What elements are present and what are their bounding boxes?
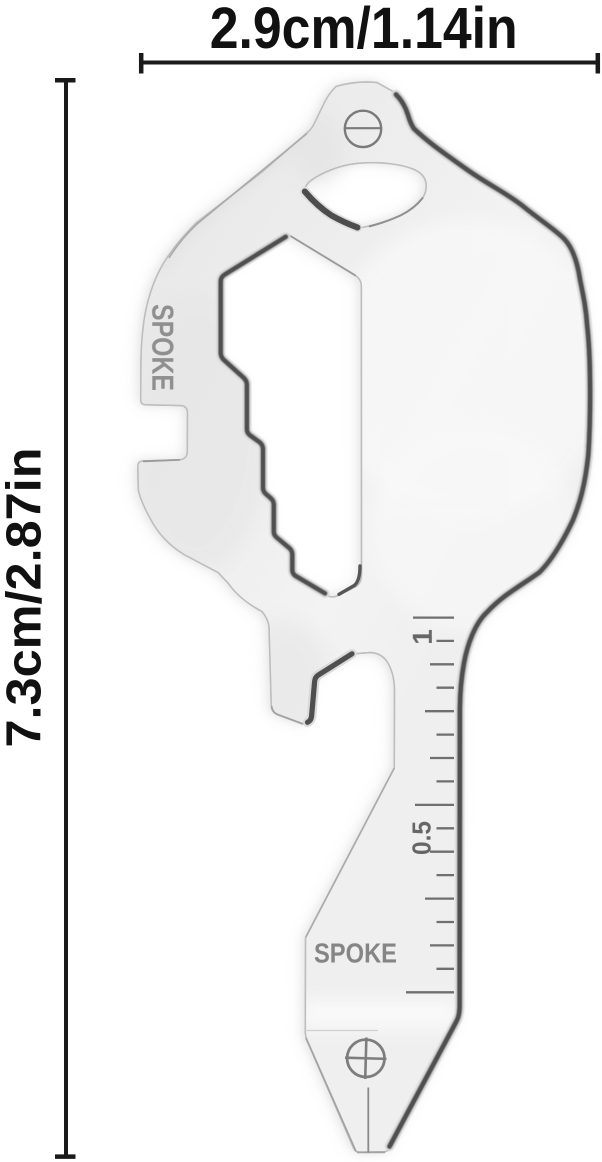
svg-text:2.9cm/1.14in: 2.9cm/1.14in bbox=[210, 0, 518, 61]
svg-text:1: 1 bbox=[407, 629, 438, 645]
svg-text:7.3cm/2.87in: 7.3cm/2.87in bbox=[0, 448, 52, 748]
svg-text:0.5: 0.5 bbox=[409, 821, 437, 855]
svg-text:SPOKE: SPOKE bbox=[145, 304, 180, 391]
svg-text:SPOKE: SPOKE bbox=[314, 938, 397, 969]
